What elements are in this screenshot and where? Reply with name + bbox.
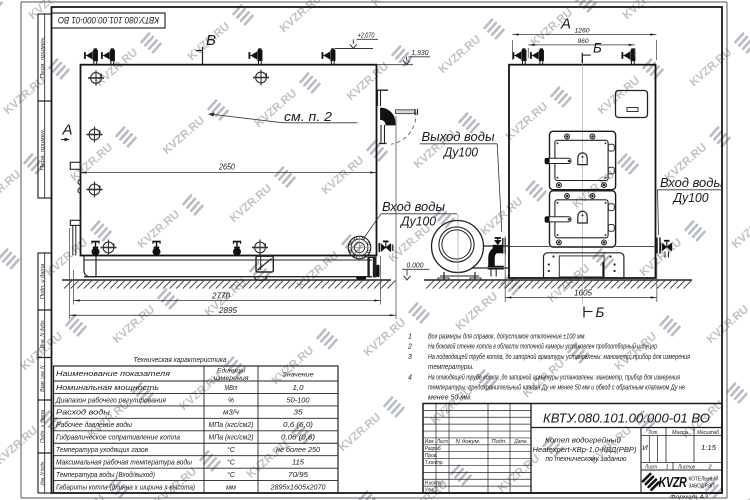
svg-text:Котел водогрейный: Котел водогрейный bbox=[545, 436, 621, 445]
svg-text:КВТУ.080.101.00.000-01 ВО: КВТУ.080.101.00.000-01 ВО bbox=[543, 411, 710, 426]
svg-text:Б: Б bbox=[593, 41, 602, 56]
svg-text:0,6 (6,0): 0,6 (6,0) bbox=[283, 422, 313, 429]
svg-text:На боковой стенке котла в обла: На боковой стенке котла в области топочн… bbox=[428, 343, 657, 351]
svg-text:Лит.: Лит. bbox=[648, 430, 659, 436]
svg-text:1: 1 bbox=[408, 334, 412, 341]
svg-text:2650: 2650 bbox=[218, 162, 235, 172]
svg-text:Б: Б bbox=[596, 305, 605, 320]
svg-text:%: % bbox=[228, 397, 234, 404]
svg-text:Гидравлическое сопративление к: Гидравлическое сопративление котла bbox=[56, 434, 180, 442]
svg-text:4: 4 bbox=[408, 374, 412, 381]
svg-text:35: 35 bbox=[294, 410, 303, 417]
svg-text:мм: мм bbox=[226, 484, 236, 491]
svg-text:Все размеры для справок, допус: Все размеры для справок, допустимое откл… bbox=[428, 333, 586, 341]
svg-text:Ду100: Ду100 bbox=[442, 145, 479, 160]
svg-text:ЗАВОД РЭП: ЗАВОД РЭП bbox=[689, 484, 715, 490]
svg-text:температуры, предохранительный: температуры, предохранительный клапан Ду… bbox=[428, 384, 685, 392]
svg-text:Утв.: Утв. bbox=[424, 487, 435, 493]
svg-text:Листов: Листов bbox=[677, 464, 695, 470]
svg-text:Максимальная рабочая температу: Максимальная рабочая температура воды bbox=[56, 459, 193, 467]
svg-text:Подп. и дата: Подп. и дата bbox=[40, 410, 46, 443]
svg-text:1260: 1260 bbox=[575, 28, 590, 35]
svg-text:В: В bbox=[206, 32, 216, 49]
svg-text:Перв. примен.: Перв. примен. bbox=[40, 37, 46, 79]
svg-text:не более 250: не более 250 bbox=[276, 446, 320, 454]
svg-text:1: 1 bbox=[665, 464, 668, 470]
svg-text:0.000: 0.000 bbox=[407, 261, 425, 270]
svg-text:менее 50 мм.: менее 50 мм. bbox=[428, 395, 472, 402]
svg-text:КОТЕЛЬНЫЙ: КОТЕЛЬНЫЙ bbox=[689, 475, 719, 483]
svg-text:2770: 2770 bbox=[211, 290, 230, 300]
svg-text:Ду100: Ду100 bbox=[672, 190, 710, 205]
svg-text:МПа (кгс/см2): МПа (кгс/см2) bbox=[209, 422, 254, 429]
svg-text:Техническая характеристика: Техническая характеристика bbox=[134, 355, 227, 364]
svg-text:Н.контр.: Н.контр. bbox=[425, 480, 444, 486]
svg-text:Разраб.: Разраб. bbox=[425, 446, 442, 452]
svg-text:2895: 2895 bbox=[218, 305, 237, 315]
svg-text:2: 2 bbox=[707, 464, 711, 470]
svg-text:Дата: Дата bbox=[514, 439, 527, 445]
svg-text:KVZR: KVZR bbox=[659, 474, 687, 491]
svg-text:Масштаб: Масштаб bbox=[697, 430, 720, 436]
svg-text:Перв. примен.: Перв. примен. bbox=[40, 129, 46, 171]
svg-text:°С: °С bbox=[227, 446, 236, 454]
svg-text:Диапазон рабочего регулировани: Диапазон рабочего регулирования bbox=[55, 396, 166, 404]
svg-text:На подводящей трубе котла, д: На подводящей трубе котла, до запорной а… bbox=[428, 353, 690, 361]
svg-text:+2,070: +2,070 bbox=[358, 31, 376, 40]
svg-text:Лист: Лист bbox=[436, 439, 448, 445]
svg-text:Пров.: Пров. bbox=[425, 453, 438, 459]
svg-text:Вход воды: Вход воды bbox=[382, 199, 445, 214]
svg-text:Единицы: Единицы bbox=[217, 367, 245, 375]
svg-text:2: 2 bbox=[407, 344, 412, 351]
svg-text:Значение: Значение bbox=[283, 372, 314, 379]
svg-text:м3/ч: м3/ч bbox=[223, 410, 239, 417]
svg-text:Взам. инв. N: Взам. инв. N bbox=[40, 365, 46, 391]
svg-text:50-100: 50-100 bbox=[287, 397, 310, 404]
svg-text:Выход воды: Выход воды bbox=[422, 129, 495, 144]
svg-text:0,06 (0,6): 0,06 (0,6) bbox=[281, 435, 315, 442]
svg-text:°С: °С bbox=[227, 459, 236, 467]
svg-text:1,0: 1,0 bbox=[293, 385, 304, 392]
svg-text:Ду100: Ду100 bbox=[399, 214, 437, 229]
svg-text:°С: °С bbox=[227, 471, 236, 479]
svg-text:Инв. N подл.: Инв. N подл. bbox=[40, 461, 46, 486]
svg-text:70/95: 70/95 bbox=[288, 472, 308, 479]
svg-text:Т.контр.: Т.контр. bbox=[425, 460, 444, 466]
svg-text:Масса: Масса bbox=[672, 430, 688, 436]
svg-text:Изм.: Изм. bbox=[425, 439, 435, 445]
svg-text:115: 115 bbox=[292, 460, 304, 467]
svg-text:Расход воды: Расход воды bbox=[56, 409, 111, 417]
svg-text:Наименование показателя: Наименование показателя bbox=[56, 371, 170, 378]
svg-text:см. п. 2: см. п. 2 bbox=[284, 110, 332, 124]
svg-text:960: 960 bbox=[578, 38, 589, 45]
svg-text:МПа (кгс/см2): МПа (кгс/см2) bbox=[209, 435, 254, 442]
svg-text:2895х1605х2070: 2895х1605х2070 bbox=[269, 484, 325, 491]
svg-text:МВт: МВт bbox=[225, 385, 238, 392]
svg-text:Heatexpert-КВр-1,0-КВД(РВР): Heatexpert-КВр-1,0-КВД(РВР) bbox=[533, 445, 638, 454]
svg-text:Номинальная мощность: Номинальная мощность bbox=[56, 385, 159, 392]
svg-text:Подп.: Подп. bbox=[492, 439, 507, 445]
svg-text:Инв. N дубл.: Инв. N дубл. bbox=[40, 319, 46, 348]
svg-text:Рабочее давление воды: Рабочее давление воды bbox=[56, 421, 133, 429]
svg-text:КВТУ.080.101.00.000-01 ВО: КВТУ.080.101.00.000-01 ВО bbox=[58, 15, 159, 25]
svg-text:А: А bbox=[560, 16, 571, 33]
svg-text:Температура воды (Вход/выход): Температура воды (Вход/выход) bbox=[56, 471, 155, 479]
svg-text:Температура уходящих газов: Температура уходящих газов bbox=[56, 446, 148, 454]
svg-text:Лист: Лист bbox=[644, 464, 657, 470]
svg-text:Габариты котла (длинна х ширин: Габариты котла (длинна х ширина х высота… bbox=[56, 483, 195, 491]
svg-text:N докум.: N докум. bbox=[456, 439, 481, 445]
svg-text:температуры.: температуры. bbox=[428, 364, 474, 371]
svg-text:Подп. и дата: Подп. и дата bbox=[40, 264, 46, 299]
svg-text:Формат А3: Формат А3 bbox=[670, 495, 709, 500]
svg-text:1:15: 1:15 bbox=[701, 443, 717, 452]
svg-text:1,930: 1,930 bbox=[412, 48, 430, 57]
svg-text:измерения: измерения bbox=[214, 375, 249, 382]
svg-text:по техническому заданию: по техническому заданию bbox=[546, 454, 627, 463]
svg-text:3: 3 bbox=[408, 354, 412, 361]
svg-text:На отводящей трубе котла ,до з: На отводящей трубе котла ,до запорной ар… bbox=[428, 373, 680, 381]
svg-text:1605: 1605 bbox=[574, 288, 593, 297]
svg-text:И: И bbox=[642, 443, 648, 452]
svg-text:Вход воды: Вход воды bbox=[660, 175, 723, 190]
svg-text:А: А bbox=[62, 122, 73, 139]
